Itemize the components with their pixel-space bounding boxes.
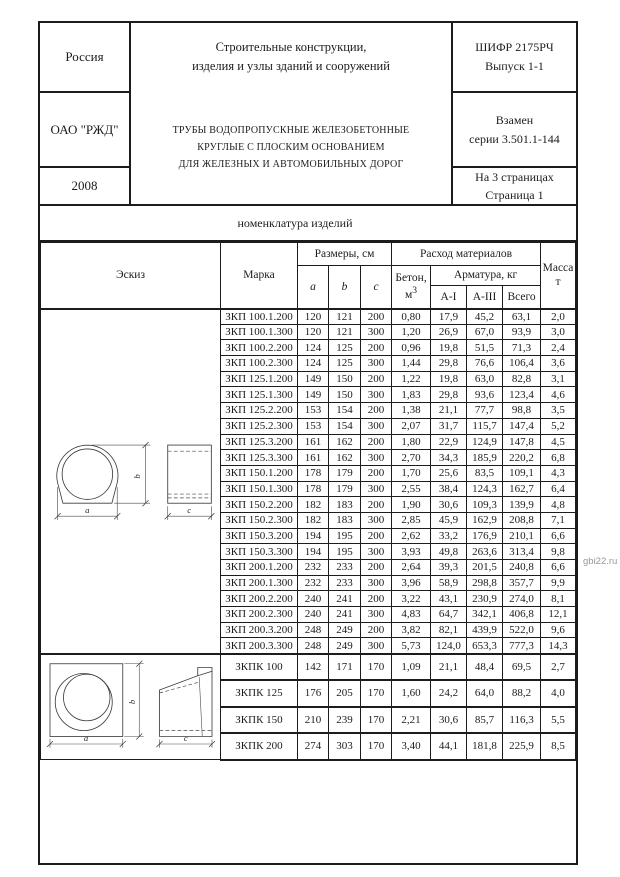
value-cell: 64,7 xyxy=(431,607,467,623)
spec-table-head: Эскиз Марка Размеры, см Расход материало… xyxy=(41,243,576,309)
value-cell: 22,9 xyxy=(431,434,467,450)
year-cell: 2008 xyxy=(40,166,129,204)
value-cell: 176,9 xyxy=(467,528,503,544)
value-cell: 195 xyxy=(329,544,361,560)
col-rebar-ai: А-I xyxy=(431,286,467,309)
col-rebar-total: Всего xyxy=(503,286,541,309)
value-cell: 2,64 xyxy=(392,560,431,576)
value-cell: 208,8 xyxy=(503,512,541,528)
value-cell: 12,1 xyxy=(541,607,576,623)
value-cell: 116,3 xyxy=(503,707,541,734)
value-cell: 230,9 xyxy=(467,591,503,607)
table-row: b a c ЗКПК 1001421711701,0921,148,469,52… xyxy=(41,654,576,681)
value-cell: 4,8 xyxy=(541,497,576,513)
empty-footer-box xyxy=(40,761,576,863)
mark-cell: ЗКП 150.1.300 xyxy=(221,481,298,497)
value-cell: 109,3 xyxy=(467,497,503,513)
mark-cell: ЗКП 100.2.300 xyxy=(221,356,298,372)
doc-title-line1: Строительные конструкции, xyxy=(216,38,367,57)
value-cell: 154 xyxy=(329,403,361,419)
sketch-cell: b a c xyxy=(41,654,221,760)
value-cell: 2,62 xyxy=(392,528,431,544)
value-cell: 439,9 xyxy=(467,622,503,638)
mark-cell: ЗКП 125.1.200 xyxy=(221,371,298,387)
value-cell: 201,5 xyxy=(467,560,503,576)
value-cell: 4,0 xyxy=(541,680,576,707)
mark-cell: ЗКП 200.1.300 xyxy=(221,575,298,591)
mark-cell: ЗКП 125.2.200 xyxy=(221,403,298,419)
value-cell: 357,7 xyxy=(503,575,541,591)
value-cell: 121 xyxy=(329,309,361,325)
mark-cell: ЗКП 150.2.300 xyxy=(221,512,298,528)
value-cell: 185,9 xyxy=(467,450,503,466)
value-cell: 205 xyxy=(329,680,361,707)
mark-cell: ЗКП 150.3.300 xyxy=(221,544,298,560)
value-cell: 149 xyxy=(298,371,329,387)
value-cell: 170 xyxy=(361,733,392,760)
subject-line3: ДЛЯ ЖЕЛЕЗНЫХ И АВТОМОБИЛЬНЫХ ДОРОГ xyxy=(179,156,404,173)
value-cell: 19,8 xyxy=(431,371,467,387)
value-cell: 300 xyxy=(361,324,392,340)
replaces-cell: Взамен серии 3.501.1-144 xyxy=(453,91,576,166)
value-cell: 153 xyxy=(298,418,329,434)
value-cell: 153 xyxy=(298,403,329,419)
document-frame: Россия Строительные конструкции, изделия… xyxy=(38,21,578,865)
value-cell: 178 xyxy=(298,481,329,497)
value-cell: 1,80 xyxy=(392,434,431,450)
mark-cell: ЗКП 200.2.300 xyxy=(221,607,298,623)
value-cell: 29,8 xyxy=(431,387,467,403)
value-cell: 4,3 xyxy=(541,465,576,481)
value-cell: 179 xyxy=(329,465,361,481)
page-number: Страница 1 xyxy=(485,186,543,204)
mark-cell: ЗКП 200.3.200 xyxy=(221,622,298,638)
value-cell: 6,8 xyxy=(541,450,576,466)
value-cell: 300 xyxy=(361,450,392,466)
value-cell: 274,0 xyxy=(503,591,541,607)
value-cell: 200 xyxy=(361,434,392,450)
value-cell: 183 xyxy=(329,497,361,513)
value-cell: 3,93 xyxy=(392,544,431,560)
value-cell: 9,8 xyxy=(541,544,576,560)
value-cell: 162 xyxy=(329,450,361,466)
value-cell: 38,4 xyxy=(431,481,467,497)
value-cell: 82,8 xyxy=(503,371,541,387)
value-cell: 25,6 xyxy=(431,465,467,481)
value-cell: 1,20 xyxy=(392,324,431,340)
value-cell: 232 xyxy=(298,560,329,576)
pages-cell: На 3 страницах Страница 1 xyxy=(453,166,576,204)
value-cell: 63,1 xyxy=(503,309,541,325)
value-cell: 200 xyxy=(361,560,392,576)
value-cell: 2,85 xyxy=(392,512,431,528)
value-cell: 49,8 xyxy=(431,544,467,560)
zkpk-sketch: b a c xyxy=(41,659,221,751)
mark-cell: ЗКП 150.2.200 xyxy=(221,497,298,513)
value-cell: 3,22 xyxy=(392,591,431,607)
value-cell: 313,4 xyxy=(503,544,541,560)
value-cell: 3,40 xyxy=(392,733,431,760)
value-cell: 147,4 xyxy=(503,418,541,434)
value-cell: 200 xyxy=(361,309,392,325)
value-cell: 31,7 xyxy=(431,418,467,434)
value-cell: 125 xyxy=(329,356,361,372)
dim-b-label: b xyxy=(132,474,142,479)
value-cell: 300 xyxy=(361,544,392,560)
value-cell: 241 xyxy=(329,607,361,623)
value-cell: 124 xyxy=(298,356,329,372)
value-cell: 210,1 xyxy=(503,528,541,544)
value-cell: 125 xyxy=(329,340,361,356)
value-cell: 2,07 xyxy=(392,418,431,434)
value-cell: 30,6 xyxy=(431,707,467,734)
country-cell: Россия xyxy=(40,23,129,91)
value-cell: 249 xyxy=(329,638,361,654)
col-dim-a: a xyxy=(298,266,329,309)
value-cell: 124,0 xyxy=(431,638,467,654)
value-cell: 0,80 xyxy=(392,309,431,325)
value-cell: 300 xyxy=(361,607,392,623)
year-label: 2008 xyxy=(72,178,98,194)
mark-cell: ЗКП 125.3.300 xyxy=(221,450,298,466)
value-cell: 263,6 xyxy=(467,544,503,560)
value-cell: 93,6 xyxy=(467,387,503,403)
col-concrete: Бетон,м3 xyxy=(392,266,431,309)
value-cell: 2,4 xyxy=(541,340,576,356)
mark-cell: ЗКПК 200 xyxy=(221,733,298,760)
replaces-line2: серии 3.501.1-144 xyxy=(469,130,560,149)
value-cell: 149 xyxy=(298,387,329,403)
value-cell: 4,83 xyxy=(392,607,431,623)
cipher-cell: ШИФР 2175РЧ Выпуск 1-1 xyxy=(453,23,576,91)
value-cell: 176 xyxy=(298,680,329,707)
value-cell: 29,8 xyxy=(431,356,467,372)
mark-cell: ЗКП 150.3.200 xyxy=(221,528,298,544)
mark-cell: ЗКП 150.1.200 xyxy=(221,465,298,481)
value-cell: 181,8 xyxy=(467,733,503,760)
mark-cell: ЗКП 125.1.300 xyxy=(221,387,298,403)
value-cell: 147,8 xyxy=(503,434,541,450)
value-cell: 300 xyxy=(361,387,392,403)
value-cell: 1,22 xyxy=(392,371,431,387)
value-cell: 33,2 xyxy=(431,528,467,544)
value-cell: 161 xyxy=(298,450,329,466)
value-cell: 162,7 xyxy=(503,481,541,497)
mark-cell: ЗКП 200.3.300 xyxy=(221,638,298,654)
value-cell: 233 xyxy=(329,560,361,576)
value-cell: 777,3 xyxy=(503,638,541,654)
spec-table: Эскиз Марка Размеры, см Расход материало… xyxy=(40,242,576,761)
value-cell: 69,5 xyxy=(503,654,541,681)
value-cell: 26,9 xyxy=(431,324,467,340)
value-cell: 63,0 xyxy=(467,371,503,387)
col-dimensions: Размеры, см xyxy=(298,243,392,266)
value-cell: 2,0 xyxy=(541,309,576,325)
value-cell: 240 xyxy=(298,591,329,607)
value-cell: 142 xyxy=(298,654,329,681)
zkp-sketch: b a c xyxy=(43,429,219,530)
value-cell: 240 xyxy=(298,607,329,623)
value-cell: 58,9 xyxy=(431,575,467,591)
value-cell: 9,9 xyxy=(541,575,576,591)
value-cell: 2,70 xyxy=(392,450,431,466)
value-cell: 150 xyxy=(329,371,361,387)
subject-cell: ТРУБЫ ВОДОПРОПУСКНЫЕ ЖЕЛЕЗОБЕТОННЫЕ КРУГ… xyxy=(129,91,453,204)
col-rebar: Арматура, кг xyxy=(431,266,541,286)
organization-label: ОАО "РЖД" xyxy=(50,122,118,138)
value-cell: 9,6 xyxy=(541,622,576,638)
value-cell: 76,6 xyxy=(467,356,503,372)
value-cell: 220,2 xyxy=(503,450,541,466)
value-cell: 85,7 xyxy=(467,707,503,734)
value-cell: 2,55 xyxy=(392,481,431,497)
value-cell: 170 xyxy=(361,654,392,681)
value-cell: 170 xyxy=(361,680,392,707)
doc-title-cell: Строительные конструкции, изделия и узлы… xyxy=(129,23,453,91)
value-cell: 232 xyxy=(298,575,329,591)
value-cell: 21,1 xyxy=(431,403,467,419)
value-cell: 248 xyxy=(298,638,329,654)
value-cell: 64,0 xyxy=(467,680,503,707)
col-dim-c: c xyxy=(361,266,392,309)
value-cell: 8,1 xyxy=(541,591,576,607)
value-cell: 300 xyxy=(361,638,392,654)
cipher-issue: Выпуск 1-1 xyxy=(485,57,544,76)
value-cell: 183 xyxy=(329,512,361,528)
value-cell: 150 xyxy=(329,387,361,403)
table-row: b a c ЗКП 100.1.2001201212000,8017,945,2… xyxy=(41,309,576,325)
value-cell: 5,2 xyxy=(541,418,576,434)
cipher-code: ШИФР 2175РЧ xyxy=(475,38,553,57)
value-cell: 194 xyxy=(298,544,329,560)
value-cell: 249 xyxy=(329,622,361,638)
title-block: Россия Строительные конструкции, изделия… xyxy=(40,23,576,206)
value-cell: 210 xyxy=(298,707,329,734)
value-cell: 39,3 xyxy=(431,560,467,576)
value-cell: 3,96 xyxy=(392,575,431,591)
value-cell: 7,1 xyxy=(541,512,576,528)
value-cell: 44,1 xyxy=(431,733,467,760)
value-cell: 106,4 xyxy=(503,356,541,372)
value-cell: 93,9 xyxy=(503,324,541,340)
value-cell: 1,70 xyxy=(392,465,431,481)
value-cell: 200 xyxy=(361,465,392,481)
value-cell: 170 xyxy=(361,707,392,734)
value-cell: 0,96 xyxy=(392,340,431,356)
value-cell: 182 xyxy=(298,497,329,513)
mark-cell: ЗКП 125.2.300 xyxy=(221,418,298,434)
value-cell: 154 xyxy=(329,418,361,434)
value-cell: 83,5 xyxy=(467,465,503,481)
value-cell: 6,6 xyxy=(541,528,576,544)
value-cell: 1,83 xyxy=(392,387,431,403)
mark-cell: ЗКП 200.1.200 xyxy=(221,560,298,576)
dim-a-label: a xyxy=(85,505,90,515)
value-cell: 124,9 xyxy=(467,434,503,450)
value-cell: 48,4 xyxy=(467,654,503,681)
value-cell: 124,3 xyxy=(467,481,503,497)
dim-a-label: a xyxy=(84,733,88,743)
value-cell: 406,8 xyxy=(503,607,541,623)
value-cell: 200 xyxy=(361,622,392,638)
value-cell: 200 xyxy=(361,528,392,544)
value-cell: 161 xyxy=(298,434,329,450)
mark-cell: ЗКП 100.2.200 xyxy=(221,340,298,356)
value-cell: 200 xyxy=(361,403,392,419)
value-cell: 51,5 xyxy=(467,340,503,356)
value-cell: 109,1 xyxy=(503,465,541,481)
value-cell: 300 xyxy=(361,481,392,497)
value-cell: 274 xyxy=(298,733,329,760)
mark-cell: ЗКП 100.1.300 xyxy=(221,324,298,340)
value-cell: 171 xyxy=(329,654,361,681)
value-cell: 1,90 xyxy=(392,497,431,513)
value-cell: 241 xyxy=(329,591,361,607)
value-cell: 298,8 xyxy=(467,575,503,591)
sketch-cell: b a c xyxy=(41,309,221,654)
col-rebar-aiii: А-III xyxy=(467,286,503,309)
value-cell: 6,6 xyxy=(541,560,576,576)
value-cell: 200 xyxy=(361,340,392,356)
mark-cell: ЗКП 200.2.200 xyxy=(221,591,298,607)
value-cell: 4,6 xyxy=(541,387,576,403)
value-cell: 225,9 xyxy=(503,733,541,760)
value-cell: 162,9 xyxy=(467,512,503,528)
value-cell: 45,9 xyxy=(431,512,467,528)
value-cell: 200 xyxy=(361,497,392,513)
dim-c-label: c xyxy=(184,733,188,743)
organization-cell: ОАО "РЖД" xyxy=(40,91,129,166)
value-cell: 123,4 xyxy=(503,387,541,403)
value-cell: 120 xyxy=(298,324,329,340)
col-sketch: Эскиз xyxy=(41,243,221,309)
value-cell: 43,1 xyxy=(431,591,467,607)
value-cell: 162 xyxy=(329,434,361,450)
value-cell: 653,3 xyxy=(467,638,503,654)
value-cell: 182 xyxy=(298,512,329,528)
value-cell: 300 xyxy=(361,575,392,591)
value-cell: 14,3 xyxy=(541,638,576,654)
value-cell: 300 xyxy=(361,356,392,372)
section-title-row: номенклатура изделий xyxy=(40,206,576,242)
value-cell: 522,0 xyxy=(503,622,541,638)
value-cell: 2,7 xyxy=(541,654,576,681)
value-cell: 300 xyxy=(361,418,392,434)
value-cell: 179 xyxy=(329,481,361,497)
value-cell: 3,0 xyxy=(541,324,576,340)
value-cell: 195 xyxy=(329,528,361,544)
mark-cell: ЗКПК 150 xyxy=(221,707,298,734)
value-cell: 98,8 xyxy=(503,403,541,419)
value-cell: 6,4 xyxy=(541,481,576,497)
watermark-text: gbi22.ru xyxy=(583,556,617,567)
value-cell: 248 xyxy=(298,622,329,638)
value-cell: 2,21 xyxy=(392,707,431,734)
value-cell: 124 xyxy=(298,340,329,356)
value-cell: 240,8 xyxy=(503,560,541,576)
value-cell: 77,7 xyxy=(467,403,503,419)
value-cell: 88,2 xyxy=(503,680,541,707)
value-cell: 233 xyxy=(329,575,361,591)
mark-cell: ЗКПК 100 xyxy=(221,654,298,681)
value-cell: 24,2 xyxy=(431,680,467,707)
mark-cell: ЗКП 125.3.200 xyxy=(221,434,298,450)
col-mark: Марка xyxy=(221,243,298,309)
value-cell: 3,1 xyxy=(541,371,576,387)
value-cell: 67,0 xyxy=(467,324,503,340)
value-cell: 82,1 xyxy=(431,622,467,638)
document-page: Россия Строительные конструкции, изделия… xyxy=(0,0,620,877)
replaces-line1: Взамен xyxy=(496,111,533,130)
dim-b-label: b xyxy=(127,700,137,705)
subject-line2: КРУГЛЫЕ С ПЛОСКИМ ОСНОВАНИЕМ xyxy=(197,139,384,156)
value-cell: 3,6 xyxy=(541,356,576,372)
mark-cell: ЗКП 100.1.200 xyxy=(221,309,298,325)
col-mass: Массат xyxy=(541,243,576,309)
value-cell: 115,7 xyxy=(467,418,503,434)
value-cell: 1,60 xyxy=(392,680,431,707)
value-cell: 5,5 xyxy=(541,707,576,734)
value-cell: 3,5 xyxy=(541,403,576,419)
value-cell: 1,09 xyxy=(392,654,431,681)
value-cell: 8,5 xyxy=(541,733,576,760)
value-cell: 4,5 xyxy=(541,434,576,450)
dim-c-label: c xyxy=(187,505,191,515)
spec-table-body: b a c ЗКП 100.1.2001201212000,8017,945,2… xyxy=(41,309,576,760)
mark-cell: ЗКПК 125 xyxy=(221,680,298,707)
value-cell: 303 xyxy=(329,733,361,760)
value-cell: 21,1 xyxy=(431,654,467,681)
value-cell: 121 xyxy=(329,324,361,340)
value-cell: 342,1 xyxy=(467,607,503,623)
value-cell: 200 xyxy=(361,591,392,607)
value-cell: 139,9 xyxy=(503,497,541,513)
value-cell: 17,9 xyxy=(431,309,467,325)
value-cell: 3,82 xyxy=(392,622,431,638)
value-cell: 1,44 xyxy=(392,356,431,372)
subject-line1: ТРУБЫ ВОДОПРОПУСКНЫЕ ЖЕЛЕЗОБЕТОННЫЕ xyxy=(173,122,410,139)
doc-title-line2: изделия и узлы зданий и сооружений xyxy=(192,57,390,76)
value-cell: 30,6 xyxy=(431,497,467,513)
value-cell: 71,3 xyxy=(503,340,541,356)
value-cell: 19,8 xyxy=(431,340,467,356)
value-cell: 45,2 xyxy=(467,309,503,325)
value-cell: 178 xyxy=(298,465,329,481)
value-cell: 34,3 xyxy=(431,450,467,466)
value-cell: 120 xyxy=(298,309,329,325)
value-cell: 300 xyxy=(361,512,392,528)
col-materials: Расход материалов xyxy=(392,243,541,266)
value-cell: 200 xyxy=(361,371,392,387)
section-title: номенклатура изделий xyxy=(238,216,353,231)
country-label: Россия xyxy=(65,49,103,65)
value-cell: 194 xyxy=(298,528,329,544)
pages-count: На 3 страницах xyxy=(475,168,554,186)
value-cell: 5,73 xyxy=(392,638,431,654)
value-cell: 1,38 xyxy=(392,403,431,419)
col-dim-b: b xyxy=(329,266,361,309)
value-cell: 239 xyxy=(329,707,361,734)
